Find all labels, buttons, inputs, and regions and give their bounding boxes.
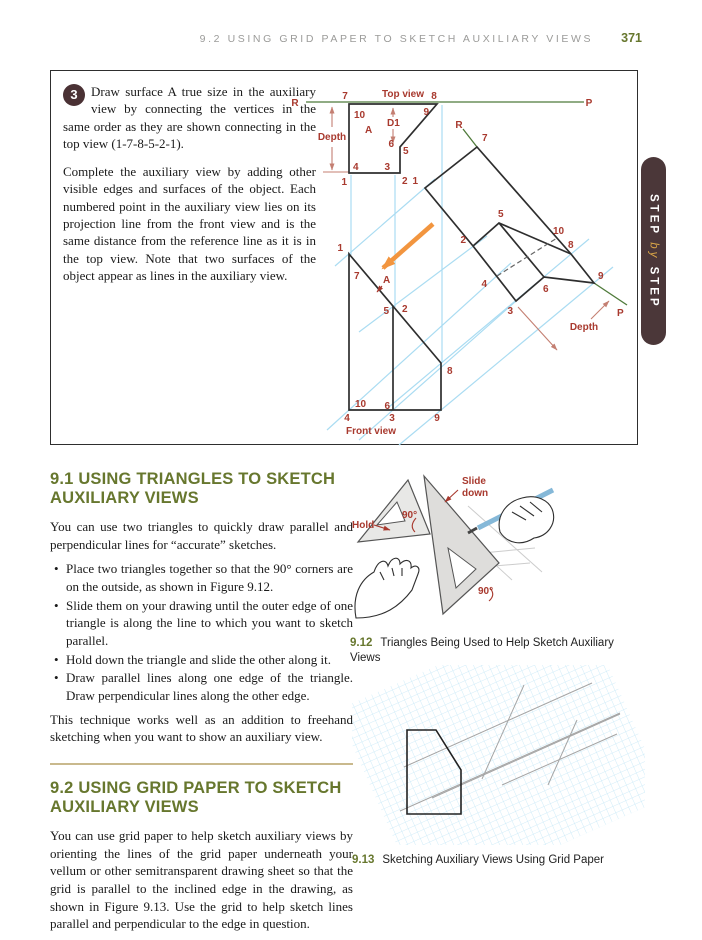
step-by-step-label: STEP by STEP [648, 194, 660, 309]
diagram-label: Depth [570, 322, 598, 333]
diagram-label: 8 [568, 240, 574, 251]
diagram-label: 6 [543, 284, 549, 295]
diagram-label: D1 [387, 118, 400, 129]
diagram-label: Depth [318, 132, 346, 143]
diagram-label: 2 [460, 235, 466, 246]
figure-number: 9.12 [350, 637, 372, 649]
section-9-1-heading: 9.1 USING TRIANGLES TO SKETCH AUXILIARY … [50, 470, 353, 509]
diagram-label: 10 [355, 399, 367, 410]
diagram-label: A [383, 275, 390, 286]
diagram-label: 2 [402, 304, 408, 315]
diagram-label: 10 [354, 110, 366, 121]
figure-9-13-caption: 9.13Sketching Auxiliary Views Using Grid… [352, 853, 645, 868]
top-view-title: Top view [382, 89, 424, 100]
diagram-label: 5 [498, 209, 504, 220]
section-divider [50, 763, 353, 765]
diagram-label: Hold [352, 520, 374, 531]
diagram-label: 9 [434, 413, 440, 424]
holding-hand [355, 558, 419, 618]
diagram-label: 7 [354, 271, 360, 282]
diagram-label: 90° [402, 510, 417, 521]
diagram-label: 3 [389, 413, 395, 424]
diagram-label: 10 [553, 226, 565, 237]
diagram-label: 3 [507, 306, 513, 317]
figure-caption-text: Sketching Auxiliary Views Using Grid Pap… [382, 854, 604, 866]
auxiliary-view-outline [425, 147, 594, 301]
bullet-item: Draw parallel lines along one edge of th… [50, 669, 353, 704]
section-9-2-body: You can use grid paper to help sketch au… [50, 827, 353, 933]
view-direction-arrow [383, 224, 433, 268]
diagram-label: 1 [337, 243, 343, 254]
diagram-label: P [617, 308, 624, 319]
diagram-label: P [586, 98, 593, 109]
figure-9-12-art: SlidedownHold90°90° [350, 468, 642, 628]
step-by-step-tab: STEP by STEP [641, 157, 666, 345]
dimension-lines [323, 107, 609, 350]
figure-9-13: 9.13Sketching Auxiliary Views Using Grid… [352, 665, 645, 868]
hidden-edge [497, 238, 557, 276]
diagram-label: 2 [402, 176, 408, 187]
section-9-1-intro: You can use two triangles to quickly dra… [50, 518, 353, 553]
rotated-grid-paper [352, 665, 645, 845]
diagram-label: 4 [481, 279, 487, 290]
diagram-label: 6 [388, 139, 394, 150]
figure-9-13-art [352, 665, 645, 845]
section-9-1-bullets: Place two triangles together so that the… [50, 560, 353, 704]
diagram-label: 4 [353, 162, 359, 173]
figure-caption-text: Triangles Being Used to Help Sketch Auxi… [350, 637, 614, 664]
section-9-2-heading: 9.2 USING GRID PAPER TO SKETCH AUXILIARY… [50, 779, 353, 818]
diagram-label: 6 [384, 401, 390, 412]
bullet-item: Slide them on your drawing until the out… [50, 597, 353, 650]
step-instructions: 3 Draw surface A true size in the auxili… [63, 83, 316, 295]
diagram-label: 7 [342, 91, 348, 102]
textbook-page: { "page": { "header": "9.2 USING GRID PA… [0, 0, 702, 900]
front-view-title: Front view [346, 426, 396, 437]
diagram-label: 90° [478, 586, 493, 597]
object-views [349, 104, 594, 410]
step-panel: RTop view78P109D1ADepth65431217A52810643… [50, 70, 638, 445]
diagram-label: down [462, 488, 488, 499]
running-head: 9.2 USING GRID PAPER TO SKETCH AUXILIARY… [50, 31, 642, 45]
drawing-hand [499, 497, 554, 543]
diagram-label: 8 [447, 366, 453, 377]
diagram-label: 5 [383, 306, 389, 317]
diagram-label: 8 [431, 91, 437, 102]
projection-lines [327, 105, 613, 445]
bullet-item: Hold down the triangle and slide the oth… [50, 651, 353, 669]
running-head-title: 9.2 USING GRID PAPER TO SKETCH AUXILIARY… [200, 33, 593, 45]
figure-number: 9.13 [352, 854, 374, 866]
diagram-label: 3 [384, 162, 390, 173]
diagram-label: 7 [482, 133, 488, 144]
diagram-label: 4 [344, 413, 350, 424]
text-column: 9.1 USING TRIANGLES TO SKETCH AUXILIARY … [50, 470, 353, 940]
step-number-badge: 3 [63, 84, 85, 106]
step-paragraph-2: Complete the auxiliary view by adding ot… [63, 163, 316, 284]
page-number: 371 [621, 31, 642, 45]
figure-9-12: SlidedownHold90°90° 9.12Triangles Being … [350, 468, 642, 666]
diagram-label: R [455, 120, 463, 131]
step-text-1: Draw surface A true size in the auxiliar… [63, 84, 316, 151]
diagram-label: 9 [423, 107, 429, 118]
step-paragraph-1: 3 Draw surface A true size in the auxili… [63, 83, 316, 152]
diagram-label: 1 [341, 177, 347, 188]
diagram-label: A [365, 125, 372, 136]
diagram-label: Slide [462, 476, 486, 487]
diagram-label: 5 [403, 146, 409, 157]
figure-9-12-caption: 9.12Triangles Being Used to Help Sketch … [350, 636, 642, 666]
diagram-labels: RTop view78P109D1ADepth65431217A52810643… [291, 89, 624, 437]
diagram-label: 1 [412, 176, 418, 187]
section-9-1-outro: This technique works well as an addition… [50, 711, 353, 746]
bullet-item: Place two triangles together so that the… [50, 560, 353, 595]
diagram-label: 9 [598, 271, 604, 282]
